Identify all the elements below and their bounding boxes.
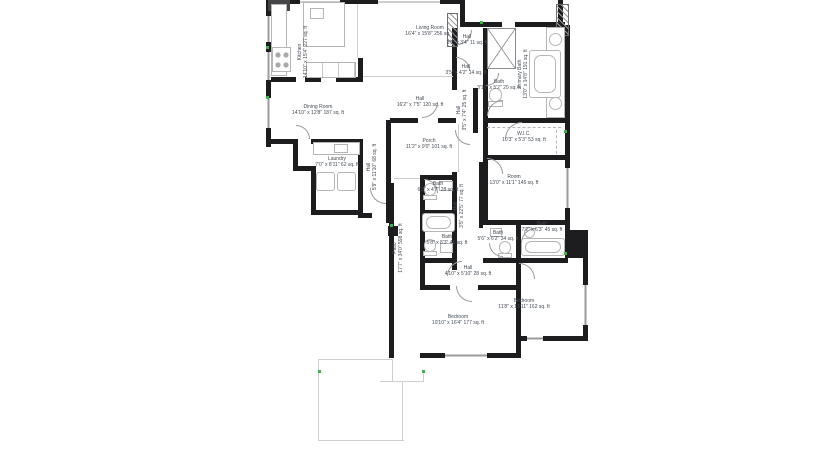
room-dims: 10'3" x 5'3" 53 sq. ft <box>502 137 546 143</box>
sink-icon-pbath-2 <box>549 97 562 110</box>
room-label-bedroom-1: Bedroom10'10" x 16'4" 177 sq. ft <box>432 314 484 326</box>
room-label-patio: Patio17'7" x 34'0" 598 sq. ft <box>392 223 404 272</box>
line-patio-bottom <box>318 440 404 441</box>
room-label-hall-laundry: Hall5'9" x 11'10" 68 sq. ft <box>366 144 378 190</box>
room-label-bedroom-2: Bedroom11'8" x 13'11" 162 sq. ft <box>498 298 549 310</box>
room-label-bath-c: Bath5'6" x 6'2" 34 sq. ft <box>477 230 518 242</box>
room-dims: 5'9" x 11'10" 68 sq. ft <box>372 144 378 190</box>
wall-corridor-bottom-stub <box>358 213 372 218</box>
window-living-top <box>378 0 440 4</box>
room-label-hall-bedrooms: Hall4'10" x 5'10" 28 sq. ft <box>445 265 492 277</box>
room-dims: 5'6" x 6'2" 34 sq. ft <box>477 236 518 242</box>
room-dims: 17'7" x 34'0" 598 sq. ft <box>398 223 404 272</box>
line-patio-step-v <box>392 359 393 382</box>
room-label-kitchen: Kitchen14'10" x 15'4" 227 sq. ft <box>297 26 309 78</box>
wall-kitchen-right-stub <box>358 58 363 82</box>
room-dims: 11'8" x 13'11" 162 sq. ft <box>498 304 549 310</box>
sink-icon-pbath-1 <box>549 33 562 46</box>
room-dims: 4'10" x 5'10" 28 sq. ft <box>445 271 492 277</box>
line-porch-south <box>394 178 420 179</box>
wall-bedroom1-top-b <box>478 285 521 290</box>
bathtub-inner-primary <box>534 55 556 93</box>
room-dims: 10'10" x 16'4" 177 sq. ft <box>432 320 484 326</box>
room-dims: 14'10" x 12'8" 187 sq. ft <box>292 110 344 116</box>
laundry-sink-icon <box>334 144 348 153</box>
room-label-hall-long: Hall3'5" x 22'5" 77 sq. ft <box>453 184 465 228</box>
wall-marker-1 <box>266 46 269 49</box>
door-arc-bedroom-2 <box>519 263 535 279</box>
dryer-icon <box>337 172 356 191</box>
wall-wic-bottom <box>483 155 568 160</box>
wall-bath-b-bottom <box>420 258 457 263</box>
window-bedroom2-right <box>583 285 588 325</box>
island-sink-icon <box>310 8 324 19</box>
room-label-bath-small: Bath3'10" x 5'2" 20 sq. ft <box>477 79 521 91</box>
room-dims: 13'0" x 14'8" 191 sq. ft <box>523 49 529 98</box>
room-label-hall-top: Hall3'5" x 3'4" 11 sq. ft <box>447 34 488 46</box>
window-left-3 <box>266 98 271 128</box>
window-bedroom1-bottom <box>445 353 487 358</box>
door-arc-bedroom-1 <box>456 286 472 302</box>
wall-hall-upper-right <box>473 88 478 133</box>
room-label-primary-bath: Primary Bath13'0" x 14'8" 191 sq. ft <box>517 49 529 98</box>
room-dims: 16'2" x 7'5" 120 sq. ft <box>397 102 444 108</box>
kitchen-counter-bottom <box>306 62 356 78</box>
room-label-bath-b: Bath5'8" x 8'3" 46 sq. ft <box>426 234 467 246</box>
wall-hall-bottom-a <box>390 118 418 123</box>
door-arc-dining <box>296 125 310 139</box>
wall-pbath-bottom <box>483 118 565 123</box>
floorplan-canvas: Kitchen14'10" x 15'4" 227 sq. ftLiving R… <box>0 0 835 467</box>
window-room-right <box>565 168 570 208</box>
room-label-porch: Porch11'2" x 9'0" 101 sq. ft <box>406 138 452 150</box>
wall-marker-6 <box>564 130 567 133</box>
room-label-wic: W.I.C.10'3" x 5'3" 53 sq. ft <box>502 131 546 143</box>
door-arc-corridor <box>370 188 386 204</box>
room-dims: 3'5" x 7'4" 25 sq. ft <box>462 89 468 130</box>
wall-marker-4 <box>318 370 321 373</box>
washer-icon <box>316 172 335 191</box>
room-label-hall-upper: Hall3'5" x 7'4" 25 sq. ft <box>456 89 468 130</box>
room-label-hall-mid: Hall3'5" x 4'2" 14 sq. ft <box>445 64 486 76</box>
wall-marker-5 <box>422 370 425 373</box>
line-patio-top <box>318 359 393 360</box>
toilet-tank-bath-a <box>423 195 437 200</box>
room-dims: 11'2" x 9'0" 101 sq. ft <box>406 144 452 150</box>
wall-hall-long-right <box>479 162 483 228</box>
line-kitchen-living <box>357 4 358 58</box>
wall-marker-2 <box>266 96 269 99</box>
wall-laundry-bottom <box>311 210 363 215</box>
room-label-laundry: Laundry7'0" x 8'11" 62 sq. ft <box>315 156 358 168</box>
room-dims: 3'5" x 22'5" 77 sq. ft <box>459 184 465 228</box>
window-bedroom2-bottom <box>527 336 543 341</box>
toilet-tank-bath-b <box>423 251 437 256</box>
closet-rod-wic <box>487 127 561 128</box>
room-label-dining-room: Dining Room14'10" x 12'8" 187 sq. ft <box>292 104 344 116</box>
room-dims: 3'10" x 5'2" 20 sq. ft <box>477 85 521 91</box>
room-dims: 7'0" x 8'11" 62 sq. ft <box>315 162 358 168</box>
wall-hall-bottom-b <box>438 118 456 123</box>
room-dims: 5'8" x 8'3" 46 sq. ft <box>426 240 467 246</box>
door-arc-room <box>487 158 503 174</box>
room-dims: 14'10" x 15'4" 227 sq. ft <box>303 26 309 78</box>
wall-chimney-block <box>565 230 585 258</box>
line-living-hall <box>363 76 453 77</box>
room-dims: 13'0" x 11'1" 145 sq. ft <box>489 180 538 186</box>
room-label-room: Room13'0" x 11'1" 145 sq. ft <box>489 174 538 186</box>
room-dims: 7'2" x 6'3" 45 sq. ft <box>521 227 562 233</box>
closet-rod-wic-2 <box>556 130 557 154</box>
room-dims: 3'5" x 3'4" 11 sq. ft <box>447 40 488 46</box>
room-dims: 3'5" x 4'2" 14 sq. ft <box>445 70 486 76</box>
wall-bath-c-bottom <box>483 258 518 263</box>
wall-marker-8 <box>480 21 483 24</box>
room-label-hall-main: Hall16'2" x 7'5" 120 sq. ft <box>397 96 444 108</box>
shower-enclosure-icon <box>487 28 516 69</box>
wall-bath-d-bottom <box>519 258 568 263</box>
room-label-bath-d: Bath7'2" x 6'3" 45 sq. ft <box>521 221 562 233</box>
wall-marker-7 <box>564 252 567 255</box>
door-arc-bath-c <box>489 243 503 257</box>
bathtub-inner-bath-b <box>426 216 451 229</box>
wall-bedroom1-top-a <box>420 285 450 290</box>
line-patio-right <box>402 381 403 441</box>
cooktop-icon <box>272 47 291 72</box>
